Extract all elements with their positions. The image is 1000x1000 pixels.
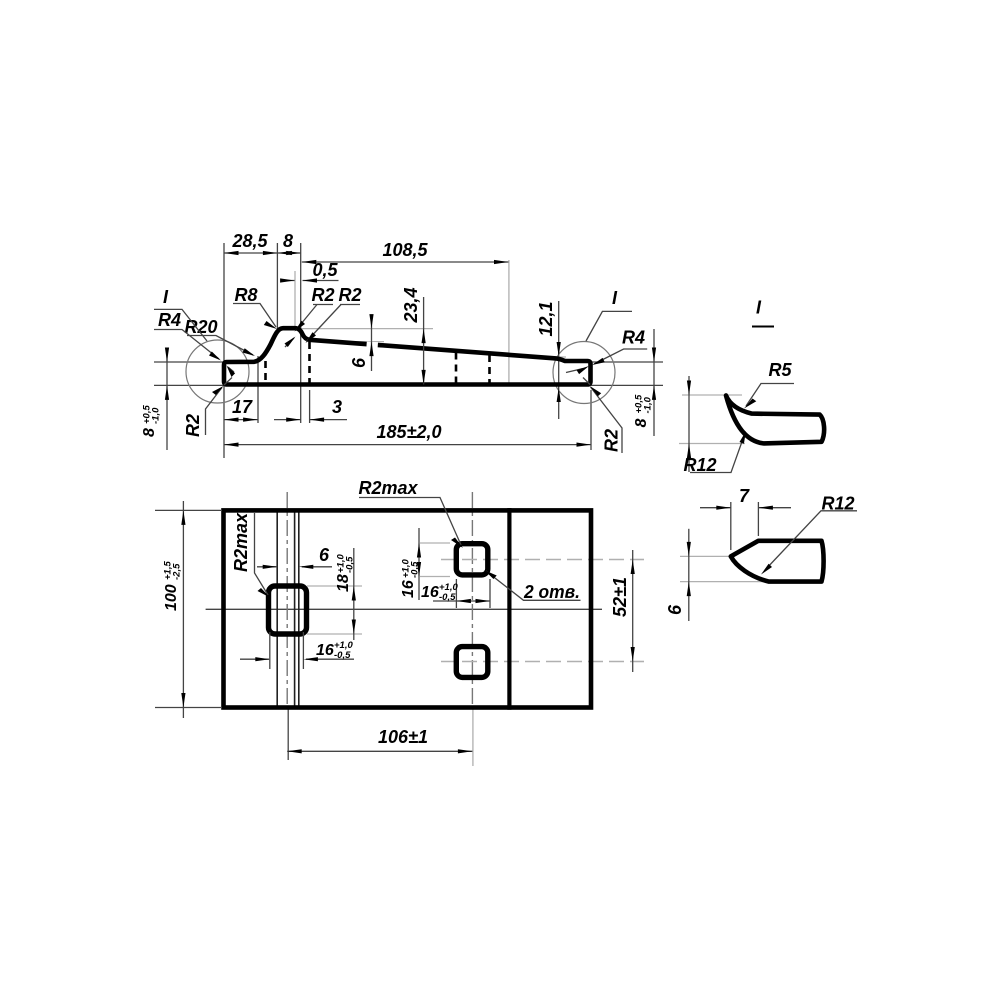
svg-text:23,4: 23,4 [401,287,421,323]
svg-text:R2: R2 [338,285,361,305]
svg-text:106±1: 106±1 [378,727,428,747]
svg-text:8: 8 [283,231,293,251]
svg-text:28,5: 28,5 [231,231,268,251]
svg-text:16: 16 [400,580,417,598]
svg-text:8: 8 [633,419,650,428]
svg-text:R2: R2 [602,429,622,452]
svg-text:-1,0: -1,0 [151,407,162,424]
svg-text:6: 6 [349,357,369,368]
svg-text:R2: R2 [311,285,334,305]
svg-text:18: 18 [335,574,352,592]
svg-text:-2,5: -2,5 [172,563,183,580]
svg-text:-0,5: -0,5 [410,561,421,578]
svg-text:I: I [756,298,762,318]
svg-text:8: 8 [141,428,158,437]
svg-text:R2max: R2max [231,512,251,572]
svg-text:-0,5: -0,5 [345,556,356,573]
svg-text:12,1: 12,1 [536,301,556,336]
svg-text:185±2,0: 185±2,0 [377,422,442,442]
svg-text:17: 17 [232,397,253,417]
svg-text:I: I [163,287,169,307]
svg-text:R4: R4 [158,310,181,330]
svg-text:-0,5: -0,5 [334,650,351,661]
svg-text:108,5: 108,5 [382,240,428,260]
svg-text:R4: R4 [622,328,645,348]
svg-text:6: 6 [319,545,330,565]
svg-text:7: 7 [739,486,750,506]
svg-text:52±1: 52±1 [610,577,630,617]
svg-text:R2max: R2max [358,478,418,498]
svg-text:16: 16 [421,584,439,601]
svg-text:R8: R8 [234,285,257,305]
svg-text:-1,0: -1,0 [643,396,654,413]
svg-text:I: I [612,288,618,308]
svg-text:2 отв.: 2 отв. [523,582,580,602]
svg-text:6: 6 [665,604,685,615]
svg-text:3: 3 [332,397,342,417]
svg-text:0,5: 0,5 [312,260,338,280]
svg-text:100: 100 [163,584,180,611]
svg-text:R5: R5 [768,360,792,380]
svg-text:16: 16 [316,642,334,659]
svg-text:R2: R2 [183,414,203,437]
svg-text:-0,5: -0,5 [439,592,456,603]
